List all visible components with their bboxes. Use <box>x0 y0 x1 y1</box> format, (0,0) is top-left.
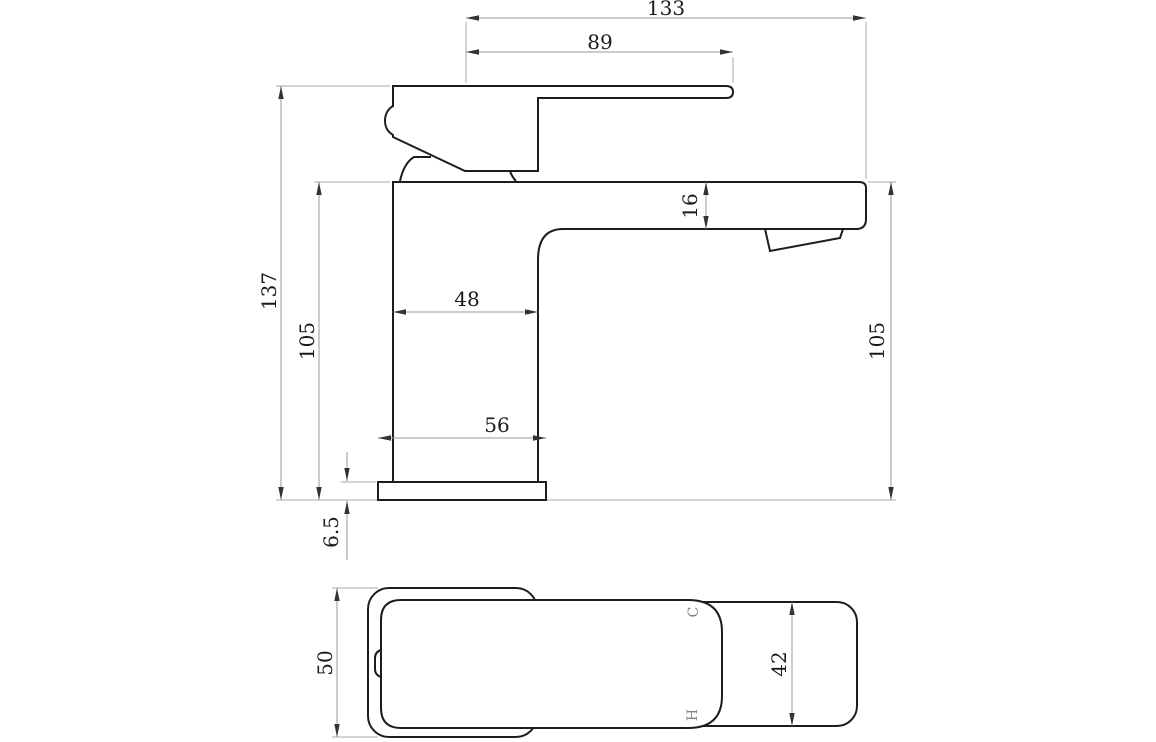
dim-body-width-label: 48 <box>454 287 479 311</box>
dim-overall-height-label: 137 <box>257 272 281 310</box>
dim-height-right-label: 105 <box>865 322 889 360</box>
cartridge-neck-right-line <box>510 171 516 181</box>
dim-body-depth-label: 50 <box>313 650 337 675</box>
plan-handle-outline <box>381 600 722 728</box>
lever-handle-outline <box>385 86 733 171</box>
dim-base-width-label: 56 <box>484 413 509 437</box>
dim-handle-reach-label: 89 <box>587 30 612 54</box>
faucet-dimension-drawing: 133 89 137 105 105 16 48 56 6.5 50 42 C … <box>0 0 1156 742</box>
cold-marking-label: C <box>686 607 702 618</box>
dim-overall-length-label: 133 <box>647 0 685 20</box>
cartridge-neck-left-line <box>400 157 431 181</box>
dim-spout-depth-label: 16 <box>678 193 702 218</box>
dim-base-thickness-label: 6.5 <box>319 516 343 548</box>
dim-height-left-label: 105 <box>295 322 319 360</box>
base-plate-outline <box>378 482 546 500</box>
faucet-body-outline <box>393 182 866 482</box>
aerator-nozzle-outline <box>765 229 843 251</box>
dim-spout-width-label: 42 <box>767 651 791 676</box>
hot-marking-label: H <box>685 709 701 721</box>
technical-drawing-canvas: 133 89 137 105 105 16 48 56 6.5 50 42 C … <box>0 0 1156 742</box>
